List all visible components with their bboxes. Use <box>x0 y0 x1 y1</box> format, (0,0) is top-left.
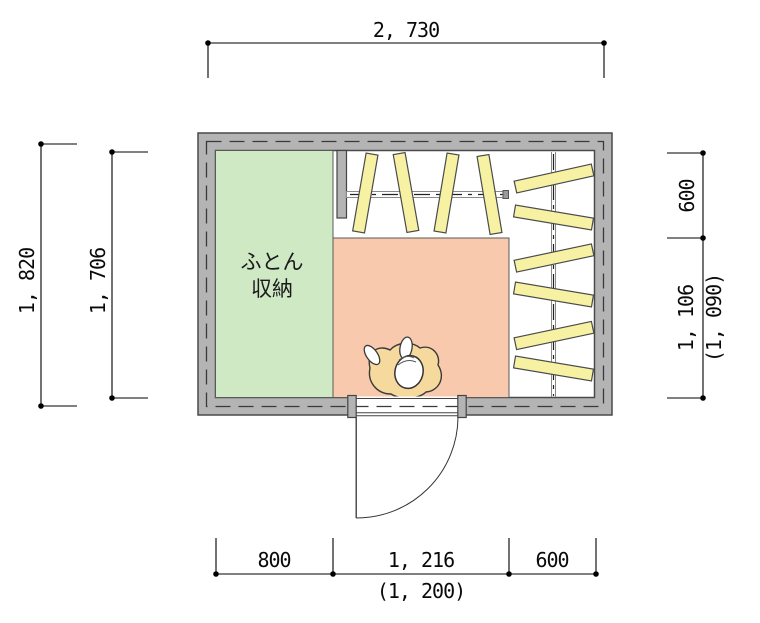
dimension-left-outer-label: 1, 820 <box>15 248 39 314</box>
room-label-line2: 収納 <box>251 277 293 301</box>
door-jamb-left <box>348 396 356 418</box>
dimension-bottom-left-label: 800 <box>257 548 290 572</box>
door-swing-arc <box>356 418 458 519</box>
dimension-bottom-center-alt-label: (1, 200) <box>377 579 465 603</box>
door-jamb-right <box>458 396 466 418</box>
floor-plan-canvas: 2, 730 1, 820 1, 706 600 1, 106 (1, 090) <box>0 0 760 623</box>
dimension-bottom-center-label: 1, 216 <box>388 548 454 572</box>
futon-storage-area <box>216 151 334 398</box>
dimension-bottom-right-label: 600 <box>535 548 568 572</box>
floor-plan-drawing: 2, 730 1, 820 1, 706 600 1, 106 (1, 090) <box>0 0 760 623</box>
dimension-right-upper-label: 600 <box>675 179 699 212</box>
dimension-left-inner <box>109 149 148 401</box>
room-label-line1: ふとん <box>241 250 304 274</box>
dimension-left-inner-label: 1, 706 <box>86 248 110 314</box>
partition-wall <box>337 151 347 219</box>
dimension-top <box>205 40 607 78</box>
rod-end-cap <box>503 191 509 199</box>
dimension-top-label: 2, 730 <box>373 18 439 42</box>
dimension-right-lower-alt-label: (1, 090) <box>702 274 726 362</box>
hanger-rod-vertical <box>552 152 556 397</box>
door-swing <box>356 418 458 519</box>
dimension-right-lower-label: 1, 106 <box>674 285 698 351</box>
dimension-left-outer <box>38 141 77 409</box>
